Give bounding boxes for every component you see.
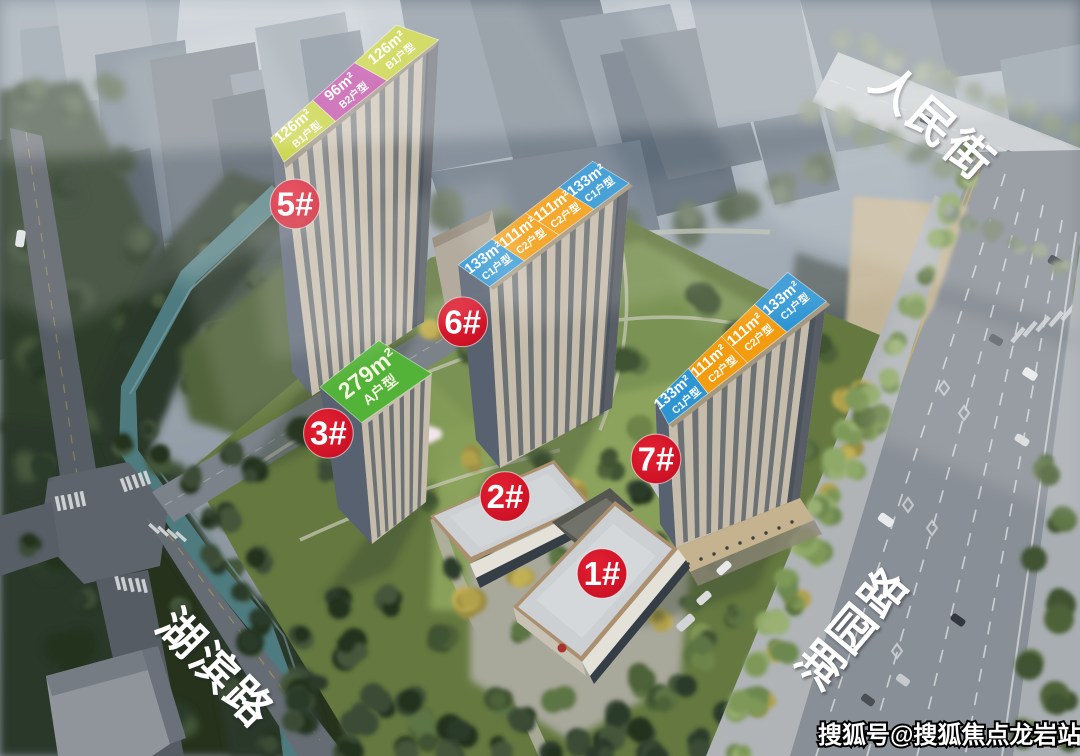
svg-text:3#: 3# (310, 415, 347, 452)
svg-text:2#: 2# (487, 478, 524, 515)
svg-text:7#: 7# (638, 441, 675, 478)
svg-text:搜狐号@搜狐焦点龙岩站: 搜狐号@搜狐焦点龙岩站 (818, 721, 1080, 749)
svg-text:1#: 1# (584, 555, 621, 592)
